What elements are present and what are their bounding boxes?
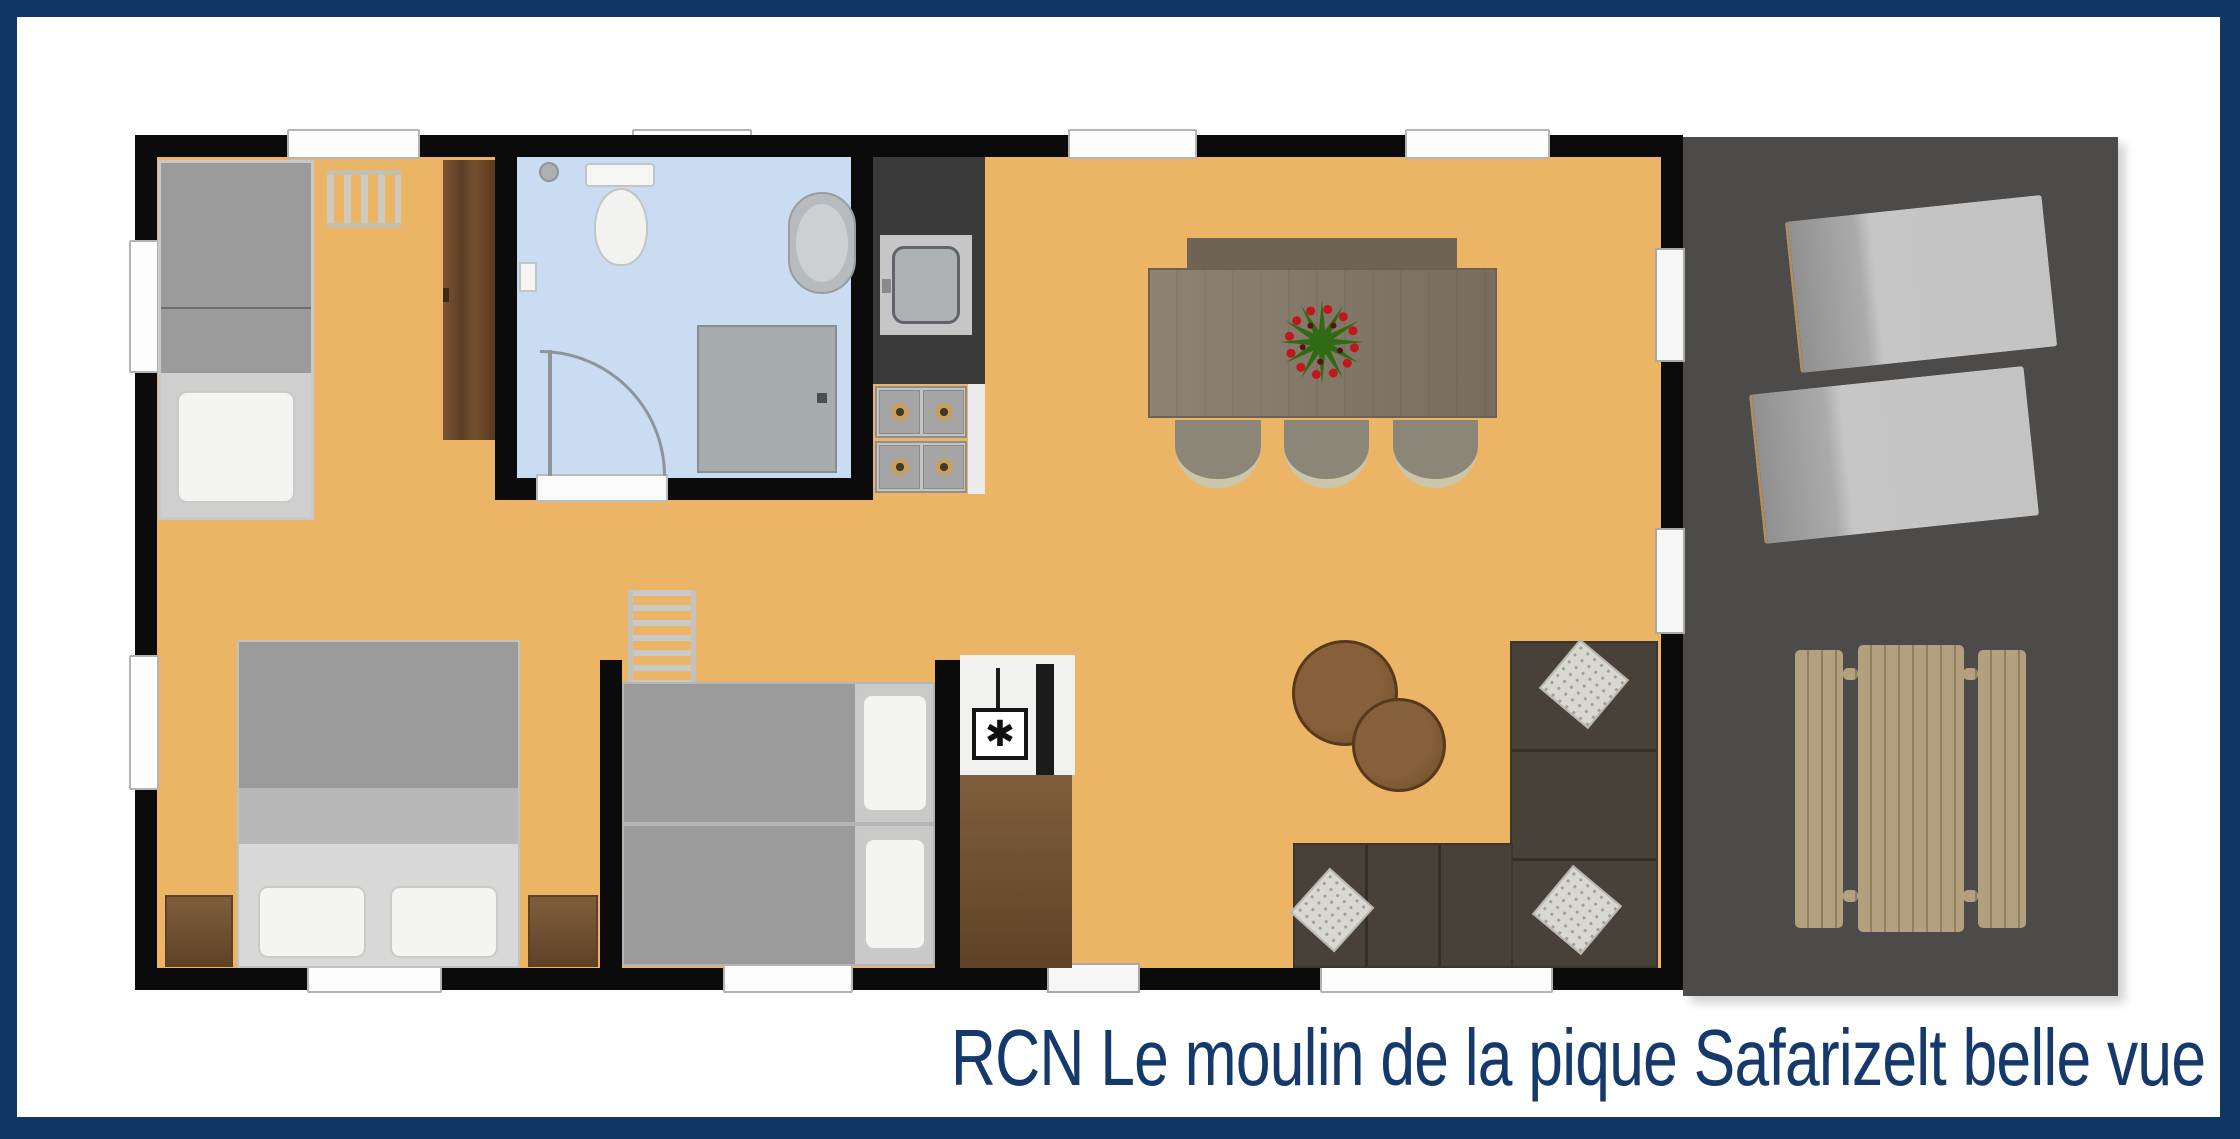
bunk-ladder-icon [327, 170, 401, 228]
kitchen-sink-surround [880, 235, 972, 335]
bathroom-door-leaf [548, 350, 552, 476]
sun-lounger-2 [1749, 366, 2039, 544]
burner-3 [879, 445, 920, 489]
window-top-3 [1068, 129, 1197, 159]
double-bed-pillow-left [258, 886, 366, 958]
stove-side-strip [968, 384, 985, 494]
twin-room-wall-left [600, 660, 622, 968]
picnic-connector-2 [1963, 668, 1978, 680]
plan-caption: RCN Le moulin de la pique Safarizelt bel… [951, 1014, 2205, 1102]
window-left-1 [129, 240, 159, 373]
frame-left [0, 0, 17, 1139]
shower-drain-icon [817, 393, 827, 403]
twin-bed-bottom-pillow [864, 838, 926, 950]
burner-knob-icon [890, 402, 910, 422]
terrace-door-lower [1655, 528, 1685, 634]
picnic-bench-left [1795, 650, 1843, 928]
burner-1 [879, 390, 920, 434]
washbasin [788, 192, 856, 294]
double-bed-pillow-right [390, 886, 498, 958]
dining-table-back-edge [1187, 238, 1457, 272]
coffee-table-small [1352, 698, 1446, 792]
radiator-bar [1036, 664, 1054, 790]
frame-bottom [0, 1117, 2240, 1139]
burner-2 [923, 390, 964, 434]
floorplan-canvas: ✱ RCN Le moulin de la pique Safarizelt b… [0, 0, 2240, 1139]
wardrobe-bedroom-1 [443, 160, 497, 440]
twin-room-wall-right [935, 660, 960, 968]
kitchen-sink [892, 246, 960, 324]
stove-chimney-line [996, 668, 1000, 710]
burner-knob-icon [934, 457, 954, 477]
twin-bed-top-pillow [862, 694, 928, 812]
sun-lounger-1 [1785, 195, 2057, 373]
terrace-door-upper [1655, 248, 1685, 362]
flower-centerpiece-icon [1272, 292, 1372, 392]
bunk-bed-pillow [177, 391, 295, 503]
picnic-connector-4 [1963, 890, 1978, 902]
washbasin-bowl [796, 204, 848, 282]
nightstand-right [528, 895, 598, 967]
double-bed [237, 640, 520, 968]
bathroom-door-opening [536, 474, 668, 502]
twin-bed-bottom [622, 824, 935, 966]
window-top-1 [287, 129, 420, 159]
kitchen-faucet-icon [882, 279, 891, 293]
frame-right [2220, 0, 2240, 1139]
shower-tray [697, 325, 837, 473]
toilet-bowl [594, 188, 648, 266]
picnic-table [1858, 645, 1964, 932]
wood-stove-icon: ✱ [972, 708, 1028, 760]
hall-cabinet [960, 775, 1072, 968]
burner-knob-icon [934, 402, 954, 422]
frame-top [0, 0, 2240, 17]
window-top-4 [1405, 129, 1550, 159]
picnic-connector-1 [1843, 668, 1858, 680]
picnic-connector-3 [1843, 890, 1858, 902]
twin-bed-top [622, 682, 935, 824]
nightstand-left [165, 895, 233, 967]
wardrobe-handle [443, 288, 449, 302]
shower-head-icon [539, 162, 559, 182]
wood-stove-symbol: ✱ [985, 716, 1015, 752]
toilet-roll-holder [519, 262, 537, 292]
bunk-bed [158, 160, 314, 520]
window-left-2 [129, 655, 159, 790]
twin-room-ladder-icon [628, 590, 696, 682]
picnic-bench-right [1978, 650, 2026, 928]
window-bottom-2 [723, 963, 853, 993]
toilet-tank [585, 163, 655, 187]
double-bed-duvet-band [239, 788, 518, 844]
burner-knob-icon [890, 457, 910, 477]
bunk-bed-seam [161, 307, 311, 309]
burner-4 [923, 445, 964, 489]
